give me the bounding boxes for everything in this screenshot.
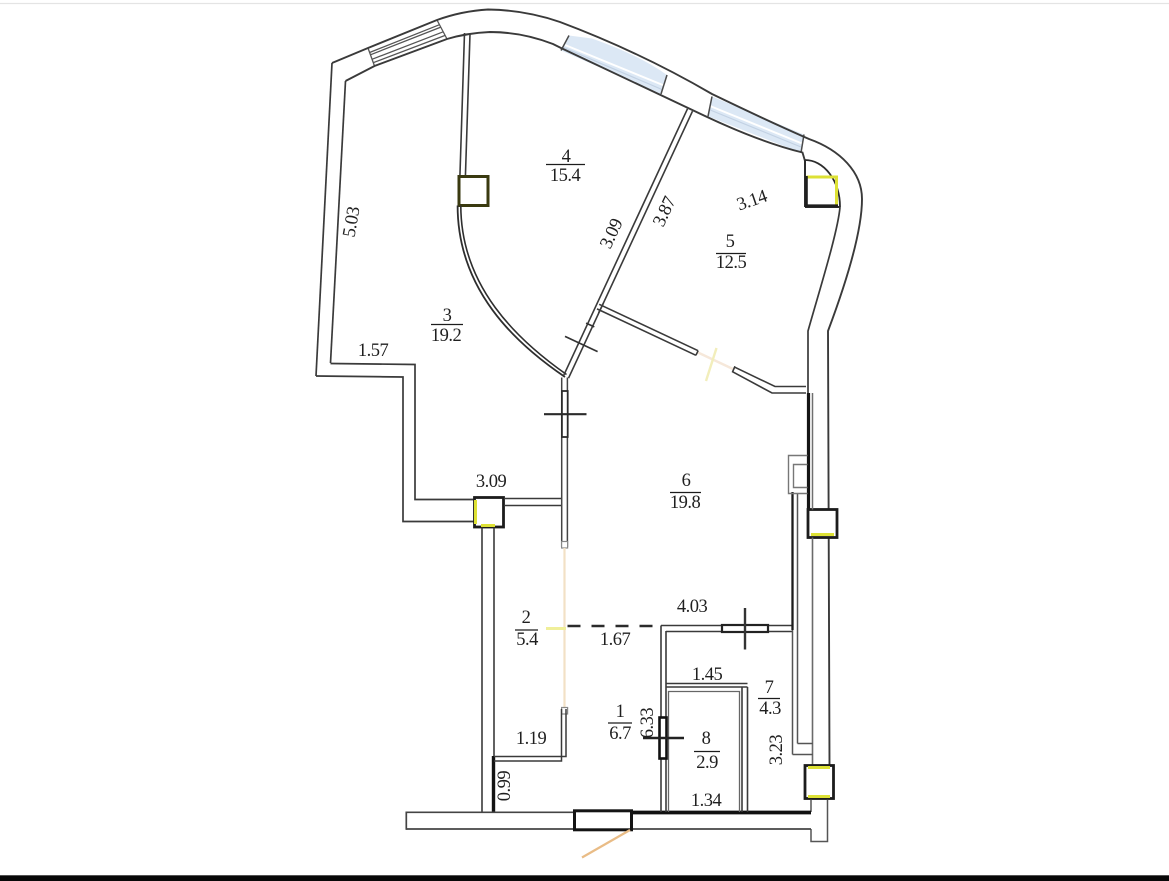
- svg-text:6.7: 6.7: [609, 724, 631, 744]
- svg-text:8: 8: [702, 729, 711, 749]
- svg-text:1.45: 1.45: [692, 665, 723, 685]
- svg-text:5: 5: [726, 232, 735, 252]
- svg-text:19.8: 19.8: [670, 493, 701, 513]
- svg-text:1.57: 1.57: [358, 341, 389, 361]
- svg-text:0.99: 0.99: [495, 771, 515, 802]
- svg-text:7: 7: [765, 678, 774, 698]
- svg-text:1.67: 1.67: [600, 630, 631, 650]
- svg-text:19.2: 19.2: [431, 326, 462, 346]
- svg-text:1.34: 1.34: [691, 791, 722, 811]
- svg-text:5.4: 5.4: [516, 630, 538, 650]
- svg-text:6.33: 6.33: [638, 708, 658, 739]
- svg-text:3.09: 3.09: [476, 472, 507, 492]
- svg-text:12.5: 12.5: [716, 253, 747, 273]
- svg-text:4.03: 4.03: [677, 597, 708, 617]
- svg-text:15.4: 15.4: [550, 166, 581, 186]
- svg-text:4.3: 4.3: [759, 699, 781, 719]
- svg-text:3.23: 3.23: [767, 735, 787, 766]
- svg-text:1: 1: [616, 702, 625, 722]
- svg-text:3: 3: [443, 306, 452, 326]
- svg-text:2: 2: [522, 608, 531, 628]
- svg-text:2.9: 2.9: [696, 753, 718, 773]
- svg-text:6: 6: [682, 471, 691, 491]
- svg-text:1.19: 1.19: [516, 729, 547, 749]
